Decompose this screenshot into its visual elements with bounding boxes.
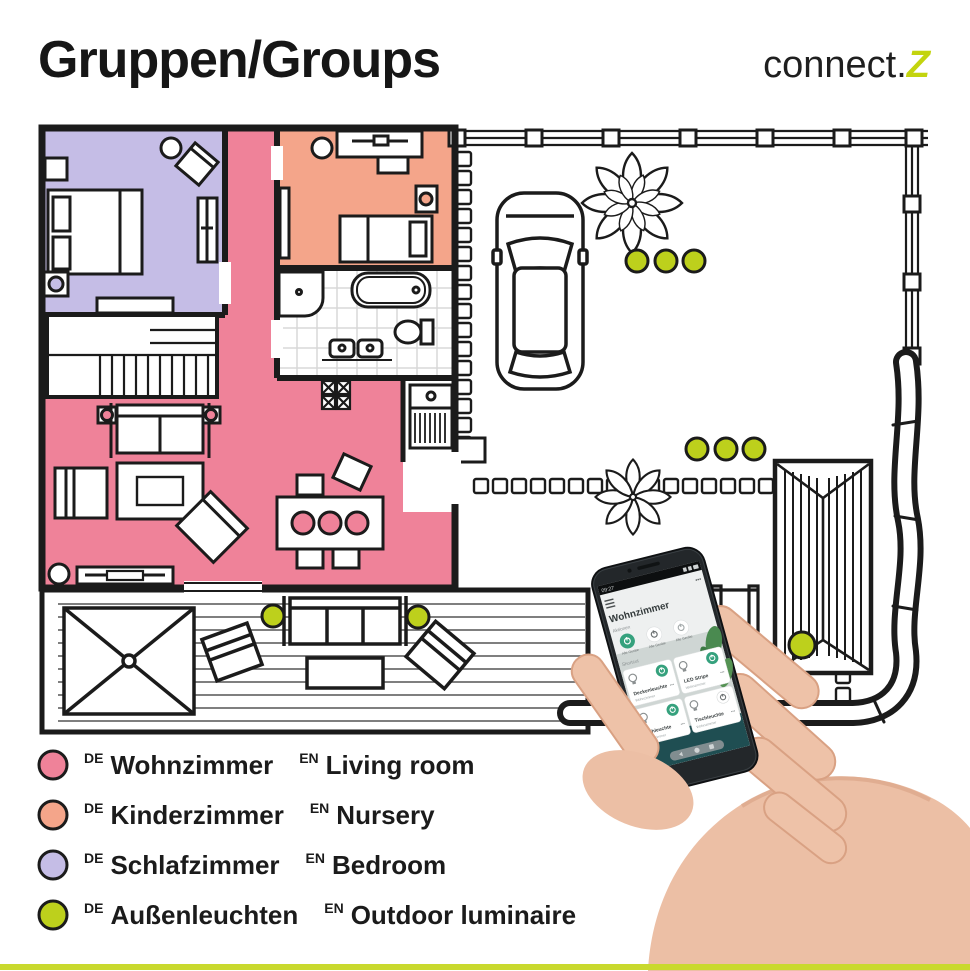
lang-tag-en: EN <box>310 800 329 816</box>
outdoor-light <box>743 438 765 460</box>
legend-name-de: Kinderzimmer <box>110 800 283 831</box>
lang-tag-en: EN <box>306 850 325 866</box>
deck <box>42 590 588 732</box>
outdoor-light <box>262 605 284 627</box>
outdoor-light <box>686 438 708 460</box>
outdoor-light <box>715 438 737 460</box>
outdoor-light <box>407 606 429 628</box>
legend-name-de: Außenleuchten <box>110 900 298 931</box>
legend-dot-living <box>36 748 70 782</box>
lang-tag-de: DE <box>84 800 103 816</box>
outdoor-light <box>683 250 705 272</box>
legend-name-en: Outdoor luminaire <box>351 900 576 931</box>
door-stoop <box>457 438 485 462</box>
armchair-1 <box>55 468 107 518</box>
deck-sofa <box>284 596 406 646</box>
round-table <box>161 138 181 158</box>
flower-top <box>582 153 682 253</box>
legend-name-de: Wohnzimmer <box>110 750 273 781</box>
sideboard <box>97 298 173 313</box>
legend-row-nursery: DE Kinderzimmer EN Nursery <box>36 798 576 832</box>
legend-name-de: Schlafzimmer <box>110 850 279 881</box>
bottom-accent-bar <box>0 963 970 971</box>
washing-machines <box>322 381 350 409</box>
kitchen-counter <box>410 385 452 448</box>
dining-chair-4 <box>333 549 359 568</box>
fence-right <box>906 146 918 356</box>
legend-name-en: Nursery <box>336 800 434 831</box>
toilet <box>395 321 421 343</box>
outdoor-light <box>655 250 677 272</box>
dining-chair-3 <box>297 549 323 568</box>
lang-tag-de: DE <box>84 900 103 916</box>
outdoor-light <box>789 632 815 658</box>
legend-row-bedroom: DE Schlafzimmer EN Bedroom <box>36 848 576 882</box>
desk-chair <box>378 157 408 173</box>
dining-chair-1 <box>297 475 323 495</box>
living-speaker <box>49 564 69 584</box>
legend-name-en: Bedroom <box>332 850 446 881</box>
lang-tag-en: EN <box>299 750 318 766</box>
stool <box>312 138 332 158</box>
legend-dot-nursery <box>36 798 70 832</box>
lang-tag-en: EN <box>324 900 343 916</box>
stairs <box>47 315 217 397</box>
flower-bottom <box>596 460 671 535</box>
car <box>493 193 587 389</box>
legend-row-living: DE Wohnzimmer EN Living room <box>36 748 576 782</box>
legend: DE Wohnzimmer EN Living room DE Kinderzi… <box>36 748 576 932</box>
deck-table <box>307 658 383 688</box>
outdoor-light <box>626 250 648 272</box>
wardrobe <box>198 198 217 262</box>
page: Gruppen/Groups connect.Z <box>0 0 970 971</box>
legend-dot-bedroom <box>36 848 70 882</box>
legend-dot-outdoor <box>36 898 70 932</box>
hallway-area <box>225 128 277 315</box>
tv-sideboard <box>77 567 173 584</box>
legend-row-outdoor: DE Außenleuchten EN Outdoor luminaire <box>36 898 576 932</box>
lang-tag-de: DE <box>84 850 103 866</box>
parasol <box>64 608 194 714</box>
lang-tag-de: DE <box>84 750 103 766</box>
legend-name-en: Living room <box>326 750 475 781</box>
